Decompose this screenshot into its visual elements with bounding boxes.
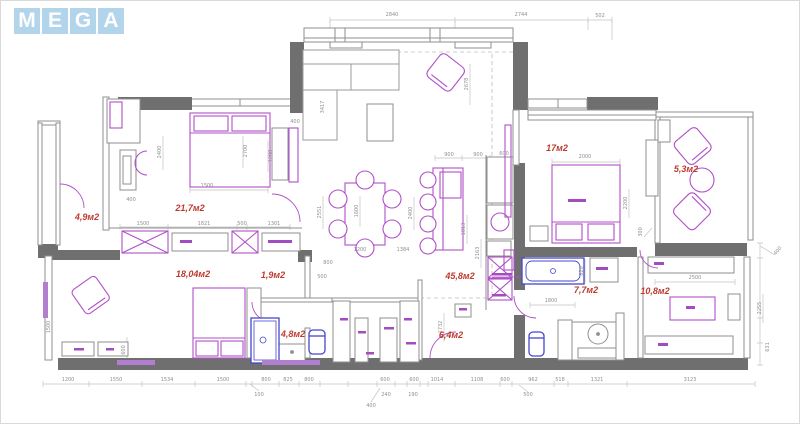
balcony-armchairs	[671, 126, 714, 232]
armchair	[71, 275, 111, 315]
logo-letter: E	[42, 8, 68, 34]
bed-master	[190, 113, 270, 187]
logo-letter: A	[98, 8, 124, 34]
logo-letter: M	[14, 8, 40, 34]
kitchen-island	[420, 168, 463, 254]
shower	[251, 318, 279, 363]
floorplan-image: M E G A	[0, 0, 800, 424]
bathtub	[522, 258, 584, 284]
bed-right	[552, 165, 620, 243]
armchair	[425, 52, 466, 93]
toilet	[529, 332, 544, 356]
logo-letter: G	[70, 8, 96, 34]
desk-chair	[135, 151, 147, 175]
dining-table	[329, 171, 401, 257]
mega-logo: M E G A	[14, 8, 124, 34]
toilet	[309, 330, 325, 354]
floor-plan-drawing	[0, 0, 800, 424]
bed-second	[193, 288, 245, 358]
